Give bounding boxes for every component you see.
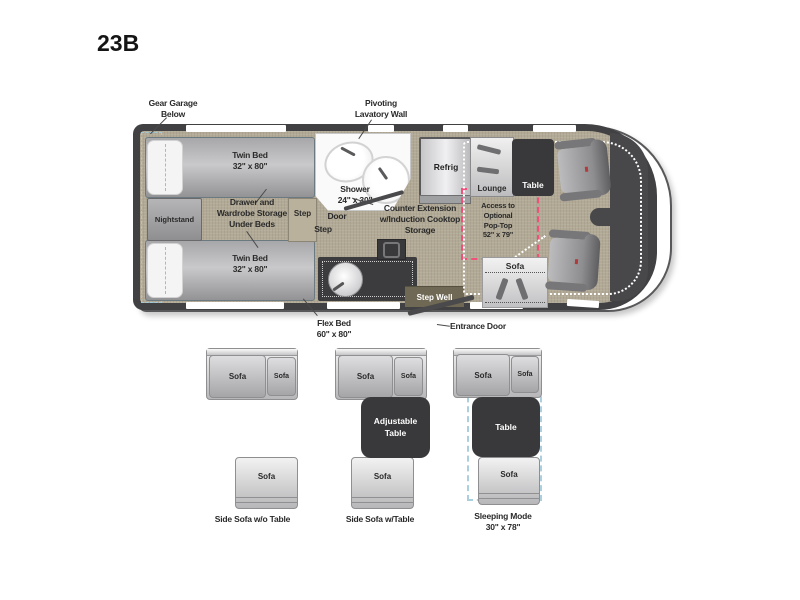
cooktop-ring xyxy=(383,242,400,258)
config3-seat-left: Sofa xyxy=(456,354,510,396)
config2-seat-right: Sofa xyxy=(394,357,423,396)
twin-bed-bottom-label: Twin Bed32" x 80" xyxy=(195,253,305,275)
lounge-table-label: Table xyxy=(512,180,554,190)
sofa-front-rail xyxy=(479,493,539,499)
step-lower-label: Step xyxy=(308,224,338,235)
chair-marker xyxy=(575,259,578,264)
config2-seat-bottom-label: Sofa xyxy=(352,472,413,481)
induction-cooktop xyxy=(377,239,406,260)
side-sofa: Sofa xyxy=(482,257,548,308)
config1-seat-right: Sofa xyxy=(267,357,296,396)
config3-caption: Sleeping Mode30" x 78" xyxy=(448,511,558,533)
nightstand-label: Nightstand xyxy=(155,215,194,224)
sofa-armrest xyxy=(515,278,528,301)
config3-table-label: Table xyxy=(495,422,517,432)
config3-sofa-bottom: Sofa xyxy=(478,457,540,505)
lounge-label: Lounge xyxy=(471,184,513,193)
config2-table-label: Table xyxy=(385,428,407,439)
counter-extension-label: Counter Extensionw/Induction CooktopStor… xyxy=(370,203,470,236)
config2-adjustable-table: Adjustable Table xyxy=(361,397,430,458)
config2-sofa-bottom: Sofa xyxy=(351,457,414,509)
gear-garage-label: Gear GarageBelow xyxy=(138,98,208,120)
pillow xyxy=(147,243,183,298)
sofa-front-rail xyxy=(352,497,413,503)
pillow-seam xyxy=(165,247,166,294)
floorplan-page: 23B Twin Bed32" x 80" Twin Bed32" x 80" … xyxy=(0,0,800,600)
cab-chair-passenger xyxy=(543,229,605,293)
pivoting-lavatory-label: PivotingLavatory Wall xyxy=(338,98,424,120)
lounge-armrest xyxy=(477,144,501,155)
chair-back xyxy=(581,234,601,291)
pillow xyxy=(147,140,183,195)
config1-sofa-bottom: Sofa xyxy=(235,457,298,509)
galley-counter xyxy=(318,257,417,301)
sofa-dotted-trim xyxy=(485,272,545,273)
window xyxy=(443,125,468,132)
config1-caption: Side Sofa w/o Table xyxy=(195,514,310,525)
window xyxy=(186,125,286,132)
entrance-door-label: Entrance Door xyxy=(450,321,545,332)
lounge-table: Table xyxy=(512,139,554,196)
door-label: Door xyxy=(322,211,352,222)
flex-bed-label: Flex Bed60" x 80" xyxy=(295,318,373,340)
side-sofa-label: Sofa xyxy=(483,261,547,271)
config3-seat-right: Sofa xyxy=(511,356,539,393)
twin-bed-top-label: Twin Bed32" x 80" xyxy=(195,150,305,172)
nightstand: Nightstand xyxy=(147,198,202,241)
pillow-seam xyxy=(165,144,166,191)
pop-top-label: Access toOptional Pop-Top52" x 79" xyxy=(461,201,535,240)
config2-table-label: Adjustable xyxy=(374,416,417,427)
storage-label: Drawer andWardrobe StorageUnder Beds xyxy=(197,197,307,230)
shower: Shower24" x 30" xyxy=(315,133,411,211)
config3-seat-bottom-label: Sofa xyxy=(479,470,539,479)
lounge-armrest xyxy=(477,167,499,175)
lounge-seat: Lounge xyxy=(470,137,514,197)
window xyxy=(186,302,284,309)
window xyxy=(327,302,400,309)
chair-marker xyxy=(585,167,589,172)
cab-chair-driver xyxy=(552,136,616,202)
window xyxy=(533,125,576,132)
page-title: 23B xyxy=(97,30,139,57)
config2-caption: Side Sofa w/Table xyxy=(330,514,430,525)
galley-sink xyxy=(328,262,363,297)
sofa-dotted-trim xyxy=(485,302,545,303)
sofa-armrest xyxy=(495,278,508,301)
sofa-front-rail xyxy=(236,497,297,503)
config1-seat-left: Sofa xyxy=(209,355,266,398)
config3-table: Table xyxy=(472,397,540,457)
config1-seat-bottom-label: Sofa xyxy=(236,472,297,481)
window xyxy=(368,125,394,132)
config2-seat-left: Sofa xyxy=(338,355,393,398)
refrig-label: Refrig xyxy=(434,162,459,172)
pointer-line xyxy=(437,324,450,327)
